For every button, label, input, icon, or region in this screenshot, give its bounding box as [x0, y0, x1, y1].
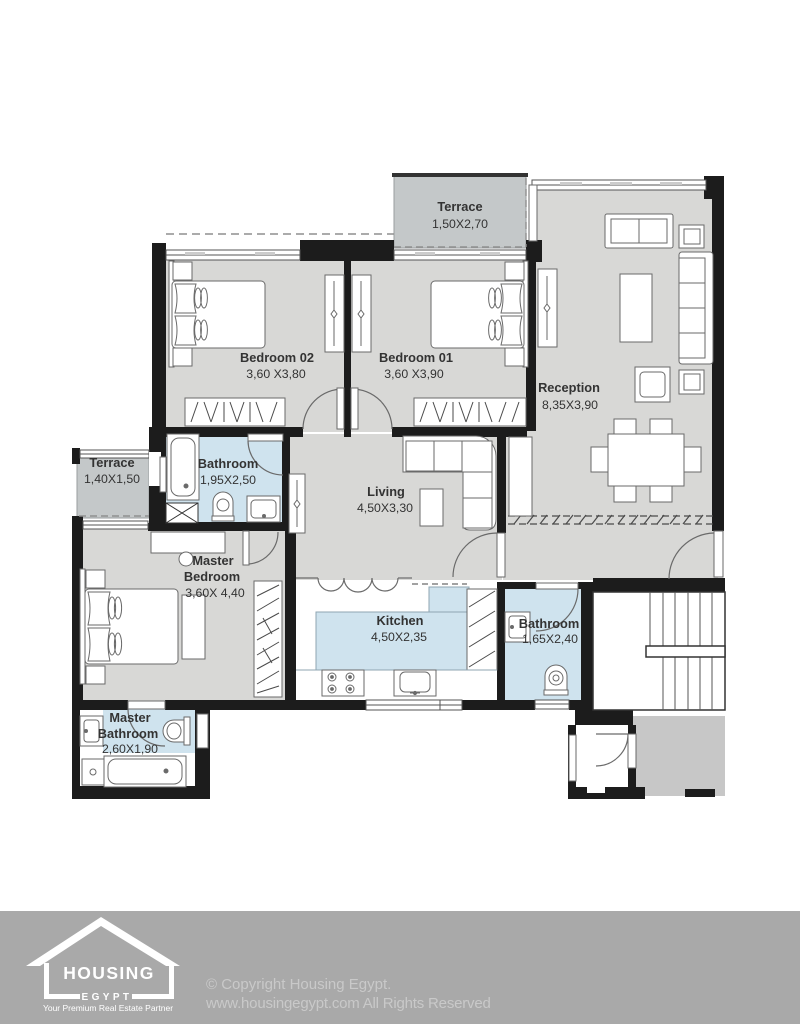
svg-text:1,65X2,40: 1,65X2,40 — [522, 632, 578, 646]
svg-text:Terrace: Terrace — [437, 199, 482, 214]
svg-text:Bathroom: Bathroom — [198, 456, 258, 471]
svg-text:Terrace: Terrace — [89, 455, 134, 470]
svg-text:2,60X1,90: 2,60X1,90 — [102, 742, 158, 756]
svg-text:www.housingegypt.com All Right: www.housingegypt.com All Rights Reserved — [205, 995, 491, 1012]
svg-text:1,40X1,50: 1,40X1,50 — [84, 472, 140, 486]
svg-text:Bedroom: Bedroom — [184, 569, 240, 584]
svg-text:Master: Master — [192, 553, 233, 568]
svg-text:Master: Master — [109, 710, 150, 725]
svg-text:Kitchen: Kitchen — [377, 613, 424, 628]
svg-text:3,60 X3,90: 3,60 X3,90 — [384, 367, 444, 381]
svg-text:Bathroom: Bathroom — [519, 616, 579, 631]
svg-text:3,60X 4,40: 3,60X 4,40 — [185, 586, 245, 600]
svg-text:Living: Living — [367, 484, 405, 499]
svg-text:8,35X3,90: 8,35X3,90 — [542, 398, 598, 412]
svg-text:Reception: Reception — [538, 380, 600, 395]
svg-text:4,50X3,30: 4,50X3,30 — [357, 501, 413, 515]
svg-text:EGYPT: EGYPT — [82, 992, 133, 1003]
svg-text:HOUSING: HOUSING — [63, 963, 154, 983]
svg-text:4,50X2,35: 4,50X2,35 — [371, 630, 427, 644]
svg-text:© Copyright Housing Egypt.: © Copyright Housing Egypt. — [206, 976, 391, 993]
svg-text:3,60 X3,80: 3,60 X3,80 — [246, 367, 306, 381]
svg-text:Bedroom 01: Bedroom 01 — [379, 350, 453, 365]
svg-text:Bathroom: Bathroom — [98, 726, 158, 741]
svg-text:1,95X2,50: 1,95X2,50 — [200, 473, 256, 487]
svg-text:Your Premium Real Estate Partn: Your Premium Real Estate Partner — [43, 1003, 173, 1013]
svg-text:1,50X2,70: 1,50X2,70 — [432, 217, 488, 231]
svg-text:Bedroom 02: Bedroom 02 — [240, 350, 314, 365]
